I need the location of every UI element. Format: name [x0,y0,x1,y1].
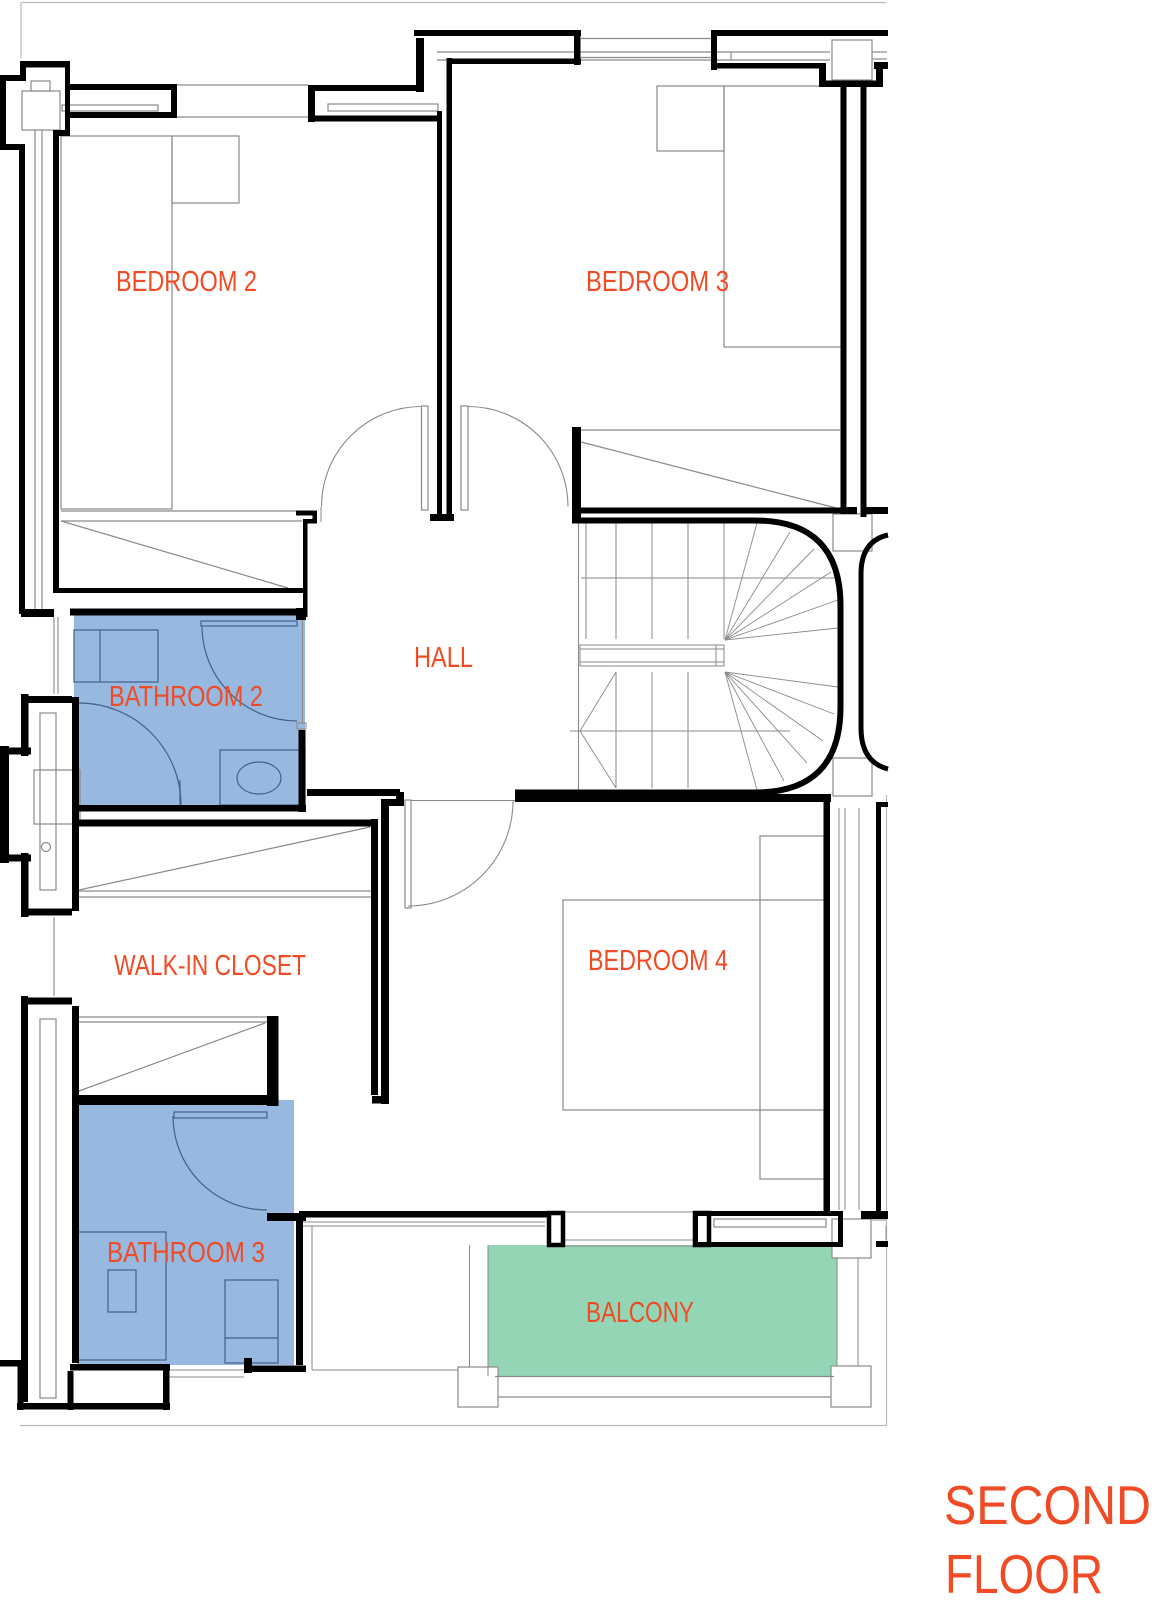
svg-text:BEDROOM 4: BEDROOM 4 [588,945,728,977]
svg-text:BALCONY: BALCONY [586,1297,694,1329]
svg-text:BATHROOM 2: BATHROOM 2 [109,681,263,713]
svg-text:FLOOR: FLOOR [945,1543,1103,1600]
svg-text:BEDROOM 3: BEDROOM 3 [586,266,729,298]
svg-text:SECOND: SECOND [944,1474,1151,1536]
svg-text:WALK-IN CLOSET: WALK-IN CLOSET [114,950,306,982]
svg-text:HALL: HALL [414,642,473,674]
svg-text:BEDROOM 2: BEDROOM 2 [116,266,257,298]
svg-text:BATHROOM 3: BATHROOM 3 [107,1237,265,1269]
